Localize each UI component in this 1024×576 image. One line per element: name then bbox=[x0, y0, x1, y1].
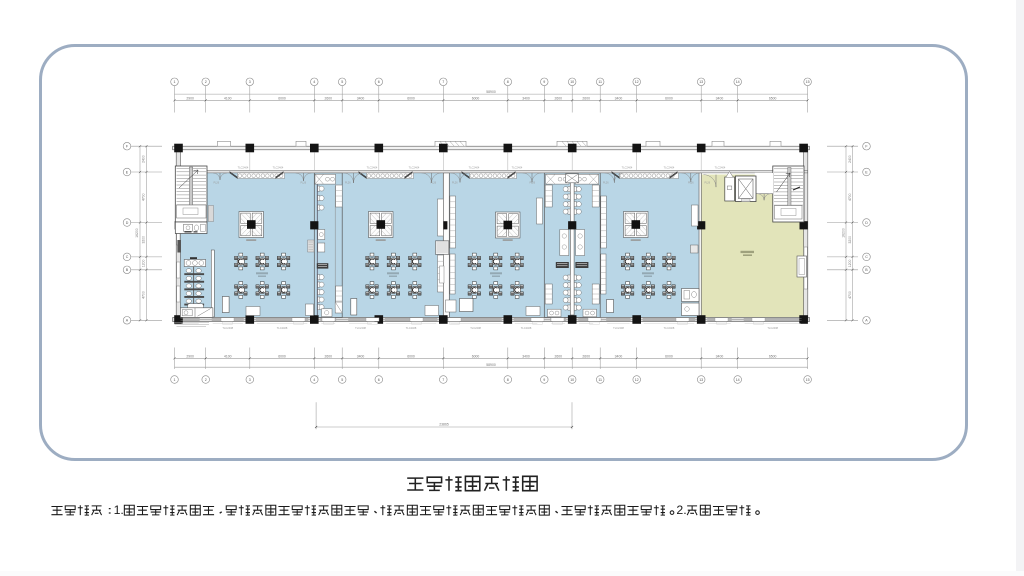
svg-text:2.: 2. bbox=[676, 503, 686, 517]
svg-text:1.: 1. bbox=[114, 503, 124, 517]
